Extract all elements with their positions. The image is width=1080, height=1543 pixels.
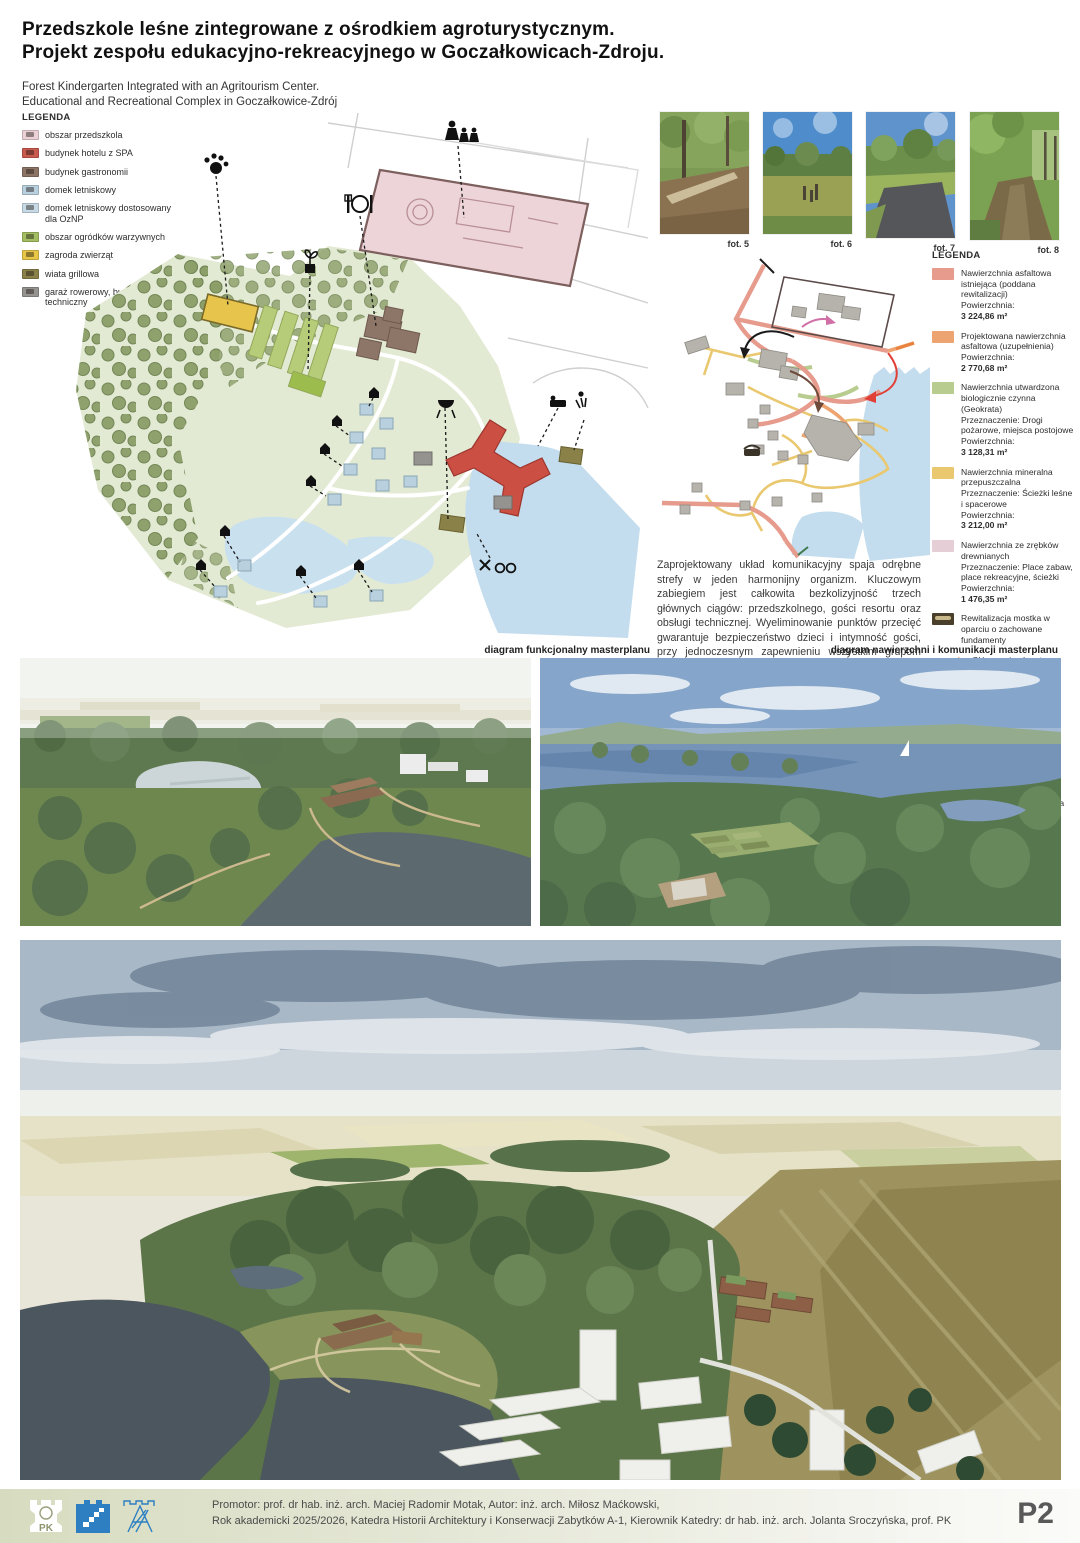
legend-purpose: Przeznaczenie: Ścieżki leśne i spacerowe <box>961 488 1074 509</box>
render-aerial-pond <box>20 658 531 926</box>
restaurant-icon <box>345 195 372 213</box>
svg-text:PK: PK <box>39 1523 54 1534</box>
legend-purpose: Przeznaczenie: Drogi pożarowe, miejsca p… <box>961 415 1074 436</box>
footer-logos: PK <box>28 1498 158 1534</box>
legend-swatch <box>932 331 954 343</box>
legend-purpose: Przeznaczenie: Place zabaw, place rekrea… <box>961 562 1074 583</box>
footer-bar: PK Promotor: prof. dr hab. inż. arch. Ma… <box>0 1489 1080 1543</box>
functional-masterplan-diagram <box>28 108 653 643</box>
footer-line-2: Rok akademicki 2025/2026, Katedra Histor… <box>212 1514 951 1530</box>
area-value: Powierzchnia: 3 128,31 m² <box>961 436 1074 457</box>
legend-swatch <box>932 467 954 479</box>
pk-logo: PK <box>28 1498 64 1534</box>
area-value: Powierzchnia: 1 476,35 m² <box>961 583 1074 604</box>
site-photo-5: fot. 5 <box>660 112 749 249</box>
render-aerial-overview <box>20 940 1061 1480</box>
render-aerial-lake <box>540 658 1061 926</box>
site-photos: fot. 5 fot. 6 <box>660 112 1072 260</box>
footer-credits: Promotor: prof. dr hab. inż. arch. Macie… <box>212 1498 951 1530</box>
legend-item: Nawierzchnia ze zrębków drewnianych Prze… <box>932 540 1074 604</box>
photo-trail-fence <box>970 112 1059 240</box>
title-line-2: Projekt zespołu edukacyjno-rekreacyjnego… <box>22 41 664 64</box>
legend-label: Projektowana nawierzchnia asfaltowa (uzu… <box>961 331 1074 352</box>
legend-swatch <box>932 268 954 280</box>
area-value: Powierzchnia: 2 770,68 m² <box>961 352 1074 373</box>
legend-label: Nawierzchnia ze zrębków drewnianych <box>961 540 1074 561</box>
communication-diagram <box>652 255 930 561</box>
site-photo-8: fot. 8 <box>970 112 1059 255</box>
legend-label: Nawierzchnia utwardzona biologicznie czy… <box>961 382 1074 414</box>
page-subtitle: Forest Kindergarten Integrated with an A… <box>22 80 337 110</box>
diagram-bridge-icon <box>744 446 760 457</box>
bridge-icon <box>932 613 954 625</box>
caption-surfaces-diagram: diagram nawierzchni i komunikacji master… <box>790 645 1058 656</box>
photo-asphalt-path <box>866 112 955 238</box>
site-photo-7: fot. 7 <box>866 112 955 253</box>
surfaces-legend-title: LEGENDA <box>932 250 1074 262</box>
footer-line-1: Promotor: prof. dr hab. inż. arch. Macie… <box>212 1498 951 1514</box>
legend-item: Nawierzchnia mineralna przepuszczalna Pr… <box>932 467 1074 531</box>
faculty-outline-logo <box>122 1498 158 1534</box>
wapk-blue-logo <box>75 1498 111 1534</box>
page-title: Przedszkole leśne zintegrowane z ośrodki… <box>22 18 664 64</box>
legend-label: Nawierzchnia mineralna przepuszczalna <box>961 467 1074 488</box>
legend-item-bridge: Rewitalizacja mostka w oparciu o zachowa… <box>932 613 1074 645</box>
site-photo-6: fot. 6 <box>763 112 852 249</box>
legend-item: Projektowana nawierzchnia asfaltowa (uzu… <box>932 331 1074 374</box>
area-value: Powierzchnia: 3 212,00 m² <box>961 510 1074 531</box>
legend-label: Rewitalizacja mostka w oparciu o zachowa… <box>961 613 1074 645</box>
legend-swatch <box>932 540 954 552</box>
diagram-kindergarten-zone <box>772 277 894 347</box>
title-line-1: Przedszkole leśne zintegrowane z ośrodki… <box>22 18 664 41</box>
area-value: Powierzchnia: 3 224,86 m² <box>961 300 1074 321</box>
subtitle-line-1: Forest Kindergarten Integrated with an A… <box>22 80 337 95</box>
legend-swatch <box>932 382 954 394</box>
caption-functional-diagram: diagram funkcjonalny masterplanu <box>380 645 650 656</box>
spa-bed-icon <box>550 391 586 408</box>
legend-item: Nawierzchnia asfaltowa istniejąca (podda… <box>932 268 1074 322</box>
photo-pond <box>763 112 852 234</box>
photo-caption: fot. 6 <box>763 239 852 249</box>
legend-item: Nawierzchnia utwardzona biologicznie czy… <box>932 382 1074 457</box>
poster-page: Przedszkole leśne zintegrowane z ośrodki… <box>0 0 1080 1543</box>
page-number: P2 <box>1017 1497 1054 1531</box>
paw-icon <box>204 153 228 174</box>
photo-caption: fot. 5 <box>660 239 749 249</box>
family-icon <box>445 121 479 142</box>
legend-label: Nawierzchnia asfaltowa istniejąca (podda… <box>961 268 1074 300</box>
photo-forest-path <box>660 112 749 234</box>
